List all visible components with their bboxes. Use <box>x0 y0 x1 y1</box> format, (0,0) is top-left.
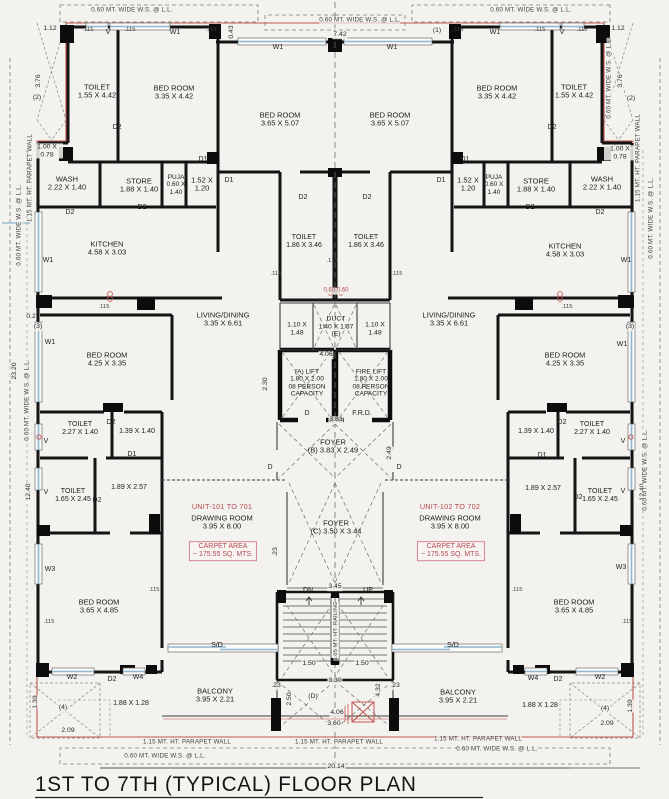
dim-label: 3.76 <box>34 74 44 87</box>
dim-label: 2.30 <box>261 377 271 390</box>
note-weather-shed: 0.60 MT. WIDE W.S. @ L.L. <box>490 8 571 15</box>
wall-thickness-mark: .115 <box>622 619 633 625</box>
door-mark-d1: D1 <box>225 177 234 185</box>
door-mark-d2: D2 <box>66 209 75 217</box>
room-label-fire-lift: FIRE LIFT1.80 X 2.0008 PERSONCAPACITY <box>352 368 389 398</box>
dim-label: 1.00 X 0.78 <box>31 143 63 158</box>
room-label-shaft: 1.10 X 1.48 <box>360 321 390 336</box>
dim-label: (3) <box>625 323 635 331</box>
note-weather-shed: 0.60 MT. WIDE W.S. @ L.L. <box>456 747 537 754</box>
dim-label: 2.49 <box>385 446 395 459</box>
dim-label: (1) <box>432 27 442 35</box>
window-mark-w1: W1 <box>387 44 398 52</box>
unit-id-left: UNIT-101 TO 701 <box>192 503 252 511</box>
window-mark-w1: W1 <box>45 339 56 347</box>
dim-label: 1.12 <box>610 25 625 33</box>
wall-thickness-mark: .115 <box>577 27 588 33</box>
door-mark-d2: D2 <box>93 497 102 505</box>
room-label-wash: WASH2.22 X 1.40 <box>583 176 621 193</box>
room-label-toilet: TOILET1.86 X 3.46 <box>348 234 384 250</box>
room-label-bedroom: BED ROOM3.35 X 4.42 <box>477 85 518 102</box>
dim-label: (D) <box>307 693 318 701</box>
door-mark-d2: D2 <box>113 124 122 132</box>
vent-mark-v: V <box>621 488 626 496</box>
dim-label-overall-width: 20.14 <box>326 763 345 771</box>
floor-plan-page: TOILET1.55 X 4.42 TOILET1.55 X 4.42 BED … <box>0 0 669 799</box>
door-mark-d2: D2 <box>108 676 117 684</box>
room-label-balcony: BALCONY3.95 X 2.21 <box>196 688 234 705</box>
room-label-passage: 1.39 X 1.40 <box>119 428 155 436</box>
room-label-shaft: 1.10 X 1.48 <box>282 321 312 336</box>
room-label-kitchen: KITCHEN4.58 X 3.03 <box>88 241 126 258</box>
dim-label: 3.83 <box>328 416 343 424</box>
dim-label: 1.50 <box>354 660 369 668</box>
room-label-toilet: TOILET2.27 X 1.40 <box>62 421 98 437</box>
window-mark-w2: W2 <box>67 674 78 682</box>
vent-mark-v: V <box>106 29 111 37</box>
room-label-bedroom: BED ROOM3.65 X 4.85 <box>79 599 120 616</box>
dim-label-overall-height: 23.20 <box>10 362 20 379</box>
vent-mark-v: V <box>560 29 565 37</box>
door-mark-d1: D1 <box>461 156 470 164</box>
window-mark-w4: W4 <box>528 675 539 683</box>
note-weather-shed: 0.60 MT. WIDE W.S. @ L.L. <box>643 429 650 510</box>
vent-dim-label: 0.60 0.60 <box>322 288 349 295</box>
door-mark-d: D <box>267 464 272 472</box>
door-mark-d: D <box>396 464 401 472</box>
window-mark-w4: W4 <box>133 674 144 682</box>
note-parapet-wall: 1.15 MT. HT. PARAPET WALL <box>636 114 643 202</box>
dim-label: (2) <box>626 95 636 103</box>
wall-thickness-mark: .115 <box>149 587 160 593</box>
room-label-passage: 1.52 X 1.20 <box>452 177 484 194</box>
room-label-passage: 1.89 X 2.57 <box>111 484 147 492</box>
door-mark-d2: D2 <box>526 204 535 212</box>
door-mark-d2: D2 <box>558 419 567 427</box>
room-label-store: STORE1.88 X 1.40 <box>120 178 158 195</box>
room-label-duct: DUCT1.40 X 1.37(E) <box>319 316 354 339</box>
note-weather-shed: 0.60 MT. WIDE W.S. @ L.L. <box>17 184 24 265</box>
window-mark-w2: W2 <box>595 674 606 682</box>
wall-thickness-mark: .115 <box>206 27 217 33</box>
room-label-bedroom: BED ROOM3.65 X 5.07 <box>260 112 301 129</box>
room-label-balcony: BALCONY3.95 X 2.21 <box>439 689 477 706</box>
dim-label: 2.09 <box>599 720 614 728</box>
wall-thickness-mark: .115 <box>44 619 55 625</box>
stair-dn-mark: DN <box>303 587 313 595</box>
room-label-passage: 1.89 X 2.57 <box>525 485 561 493</box>
door-mark-d2: D2 <box>596 209 605 217</box>
dim-label: 1.50 <box>301 660 316 668</box>
dim-label: (3) <box>33 323 43 331</box>
dim-label: 2.50 <box>285 692 295 705</box>
room-label-passage: 1.88 X 1.28 <box>522 702 558 710</box>
vent-mark-v: V <box>44 489 49 497</box>
dim-label: (4) <box>58 704 68 712</box>
dim-label: 1.12 <box>42 25 57 33</box>
vent-mark-v: V <box>44 438 49 446</box>
room-label-passage: 1.52 X 1.20 <box>186 177 218 194</box>
window-mark-w1: W1 <box>43 257 54 265</box>
wall-thickness-mark: .115 <box>535 27 546 33</box>
dim-label: 2.09 <box>60 727 75 735</box>
room-label-toilet: TOILET1.86 X 3.46 <box>286 234 322 250</box>
sliding-door-mark: S/D <box>211 642 223 650</box>
window-mark-w1: W1 <box>273 44 284 52</box>
dim-label: 7.42 <box>332 31 347 39</box>
room-label-toilet: TOILET1.65 X 2.45 <box>55 488 91 504</box>
wall-thickness-mark: .115 <box>562 304 573 310</box>
window-mark-w1: W1 <box>617 341 628 349</box>
room-label-store: STORE1.88 X 1.40 <box>517 178 555 195</box>
door-mark-d1: D1 <box>128 451 137 459</box>
dim-label: 0.43 <box>227 25 237 38</box>
fire-point-symbol <box>345 702 374 724</box>
dim-label: .23 <box>389 682 400 690</box>
stair-up-mark: UP <box>363 587 373 595</box>
dim-label: 4.06 <box>318 351 333 359</box>
door-mark-d1: D1 <box>538 452 547 460</box>
room-label-bedroom: BED ROOM3.35 X 4.42 <box>154 85 195 102</box>
door-mark-d2: D2 <box>138 204 147 212</box>
dim-label: 4.06 <box>329 709 344 717</box>
note-parapet-wall: 1.15 MT. HT. PARAPET WALL <box>434 737 522 744</box>
room-label-foyer: FOYER(C) 3.50 X 3.44 <box>311 520 362 537</box>
note-weather-shed: 0.60 MT. WIDE W.S. @ L.L. <box>91 8 172 15</box>
dim-label: 1.00 X 0.78 <box>604 145 636 160</box>
wall-thickness-mark: .115 <box>392 271 403 277</box>
note-weather-shed: 0.60 MT. WIDE W.S. @ L.L. <box>607 37 614 118</box>
room-label-bedroom: BED ROOM4.25 X 3.35 <box>87 352 128 369</box>
room-label-passage: 1.88 X 1.28 <box>113 700 149 708</box>
room-label-bedroom: BED ROOM3.65 X 4.85 <box>554 599 595 616</box>
dim-label: 3.76 <box>616 74 626 87</box>
dim-label: 3.60 <box>326 720 341 728</box>
wall-thickness-mark: .115 <box>512 587 523 593</box>
room-label-passage: 1.39 X 1.40 <box>518 428 554 436</box>
wall-thickness-mark: .115 <box>99 304 110 310</box>
dim-label: .23 <box>270 682 281 690</box>
room-label-toilet: TOILET1.55 X 4.42 <box>555 84 593 101</box>
wall-thickness-mark: .115 <box>453 27 464 33</box>
vent-mark-v: V <box>621 438 626 446</box>
room-label-puja: PUJA0.60 X 1.40 <box>481 174 507 196</box>
door-mark-d2: D2 <box>363 194 372 202</box>
room-label-foyer: FOYER(B) 3.83 X 2.49 <box>308 439 358 456</box>
dim-label: 0.2 <box>25 313 36 321</box>
window-mark-w1: W1 <box>490 29 501 37</box>
door-mark-d2: D2 <box>548 124 557 132</box>
room-label-kitchen: KITCHEN4.58 X 3.03 <box>546 243 584 260</box>
dim-label: 3.30 <box>327 677 342 685</box>
drawing-title: 1ST TO 7TH (TYPICAL) FLOOR PLAN <box>35 772 417 797</box>
door-mark-d2: D2 <box>107 419 116 427</box>
note-weather-shed: 0.60 MT. WIDE W.S. @ L.L. <box>25 359 32 440</box>
window-mark-w3: W3 <box>45 566 56 574</box>
window-mark-w1: W1 <box>621 257 632 265</box>
fire-door-mark: F.R.D. <box>352 410 371 418</box>
note-weather-shed: 0.60 MT. WIDE W.S. @ L.L. <box>649 177 656 258</box>
note-parapet-wall: 1.15 MT. HT. PARAPET WALL <box>295 740 383 747</box>
window-mark-w3: W3 <box>616 564 627 572</box>
dim-label: .23 <box>271 547 281 556</box>
room-label-living-dining: LIVING/DINING3.35 X 6.61 <box>423 312 476 329</box>
dim-label: 1.39 <box>31 695 41 708</box>
note-stair-railing: 1.05 MT. HT. RAILING <box>333 601 339 660</box>
door-mark-d2: D2 <box>574 494 583 502</box>
note-parapet-wall: 1.15 MT. HT. PARAPET WALL <box>28 134 35 222</box>
carpet-area-right: CARPET AREA~ 175.55 SQ. MTS. <box>417 541 485 561</box>
note-weather-shed: 0.60 MT. WIDE W.S. @ L.L. <box>124 754 205 761</box>
window-mark-w1: W1 <box>170 29 181 37</box>
dim-label: (4) <box>600 705 610 713</box>
dim-label: (2) <box>32 94 42 102</box>
unit-room-left: DRAWING ROOM3.95 X 8.00 <box>191 515 252 532</box>
dim-label: 1.39 <box>626 699 636 712</box>
wall-thickness-mark: .115 <box>271 271 282 277</box>
room-label-toilet: TOILET2.27 X 1.40 <box>574 421 610 437</box>
door-mark-d1: D1 <box>199 156 208 164</box>
room-label-living-dining: LIVING/DINING3.35 X 6.61 <box>197 312 250 329</box>
wall-thickness-mark: .115 <box>83 27 94 33</box>
room-label-toilet: TOILET1.65 X 2.45 <box>582 488 618 504</box>
door-mark-d1: D1 <box>437 177 446 185</box>
sliding-door-mark: S/D <box>447 642 459 650</box>
door-mark-d: D <box>304 410 309 418</box>
dim-label: 3.45 <box>327 583 342 591</box>
dim-label: 4.32 <box>374 683 384 696</box>
room-label-wash: WASH2.22 X 1.40 <box>48 176 86 193</box>
dim-label: 12.40 <box>24 483 34 500</box>
wall-thickness-mark: .115 <box>327 258 338 264</box>
room-label-toilet: TOILET1.55 X 4.42 <box>78 84 116 101</box>
unit-id-right: UNIT-102 TO 702 <box>420 503 480 511</box>
note-parapet-wall: 1.15 MT. HT. PARAPET WALL <box>143 740 231 747</box>
wall-thickness-mark: .115 <box>125 27 136 33</box>
carpet-area-left: CARPET AREA~ 175.55 SQ. MTS. <box>189 541 257 561</box>
door-mark-d2: D2 <box>299 194 308 202</box>
room-label-bedroom: BED ROOM3.65 X 5.07 <box>370 112 411 129</box>
unit-room-right: DRAWING ROOM3.95 X 8.00 <box>419 515 480 532</box>
room-label-lift: (A) LIFT1.80 X 2.0008 PERSONCAPACITY <box>288 368 325 398</box>
door-mark-d2: D2 <box>554 676 563 684</box>
room-label-bedroom: BED ROOM4.25 X 3.35 <box>545 352 586 369</box>
note-weather-shed: 0.60 MT. WIDE W.S. @ L.L. <box>319 18 400 25</box>
